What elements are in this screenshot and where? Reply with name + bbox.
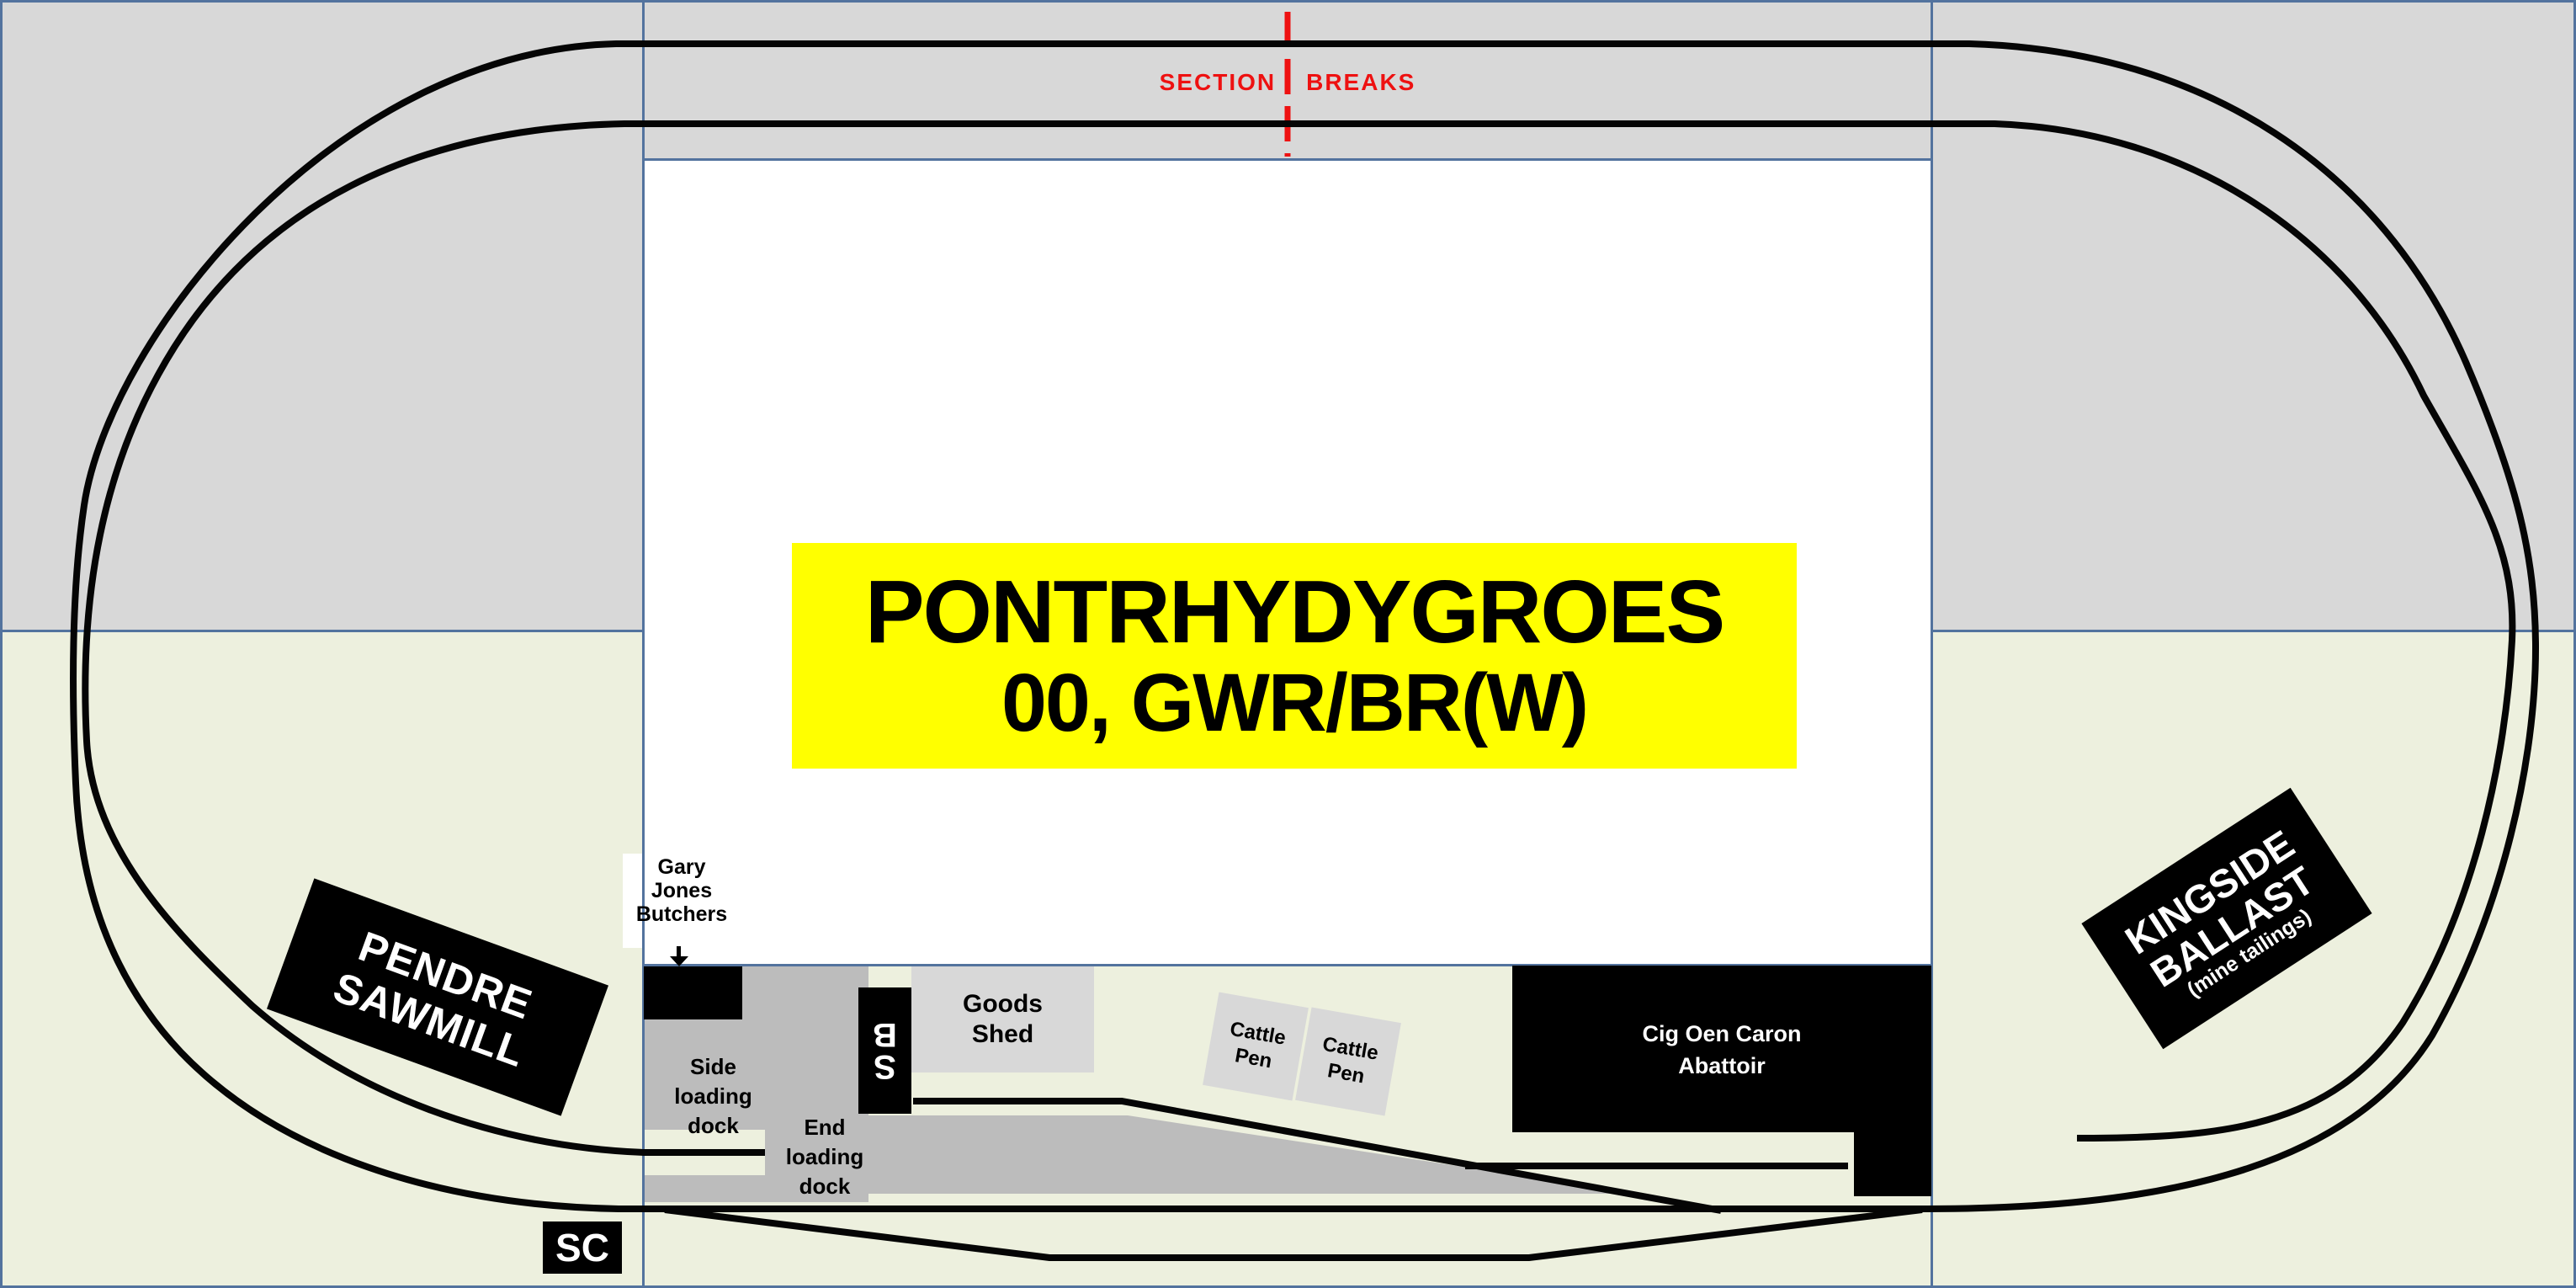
signal-box: S B — [858, 987, 911, 1114]
butchers-building — [644, 966, 742, 1019]
section-breaks-word-2: BREAKS — [1306, 69, 1415, 96]
section-breaks-word-1: SECTION — [1160, 69, 1276, 96]
end-loading-dock-label: End loading dock — [757, 1113, 892, 1201]
section-marker-sc-label: SC — [555, 1225, 609, 1270]
track-plan-canvas: Goods Shed Cattle Pen Cattle Pen PONTRHY… — [0, 0, 2576, 1288]
abattoir-building: Cig Oen Caron Abattoir — [1512, 966, 1931, 1132]
abattoir-label: Cig Oen Caron Abattoir — [1512, 966, 1931, 1082]
section-marker-sc: SC — [543, 1221, 622, 1274]
signal-box-label: S B — [873, 1019, 897, 1083]
butchers-arrowhead-icon — [670, 956, 688, 966]
butchers-label: Gary Jones Butchers — [621, 855, 742, 926]
passing-loop-track — [665, 1210, 1922, 1258]
track-diagram — [0, 0, 2576, 1288]
abattoir-annex — [1854, 1132, 1931, 1196]
section-breaks-label: SECTION BREAKS — [1035, 69, 1540, 96]
